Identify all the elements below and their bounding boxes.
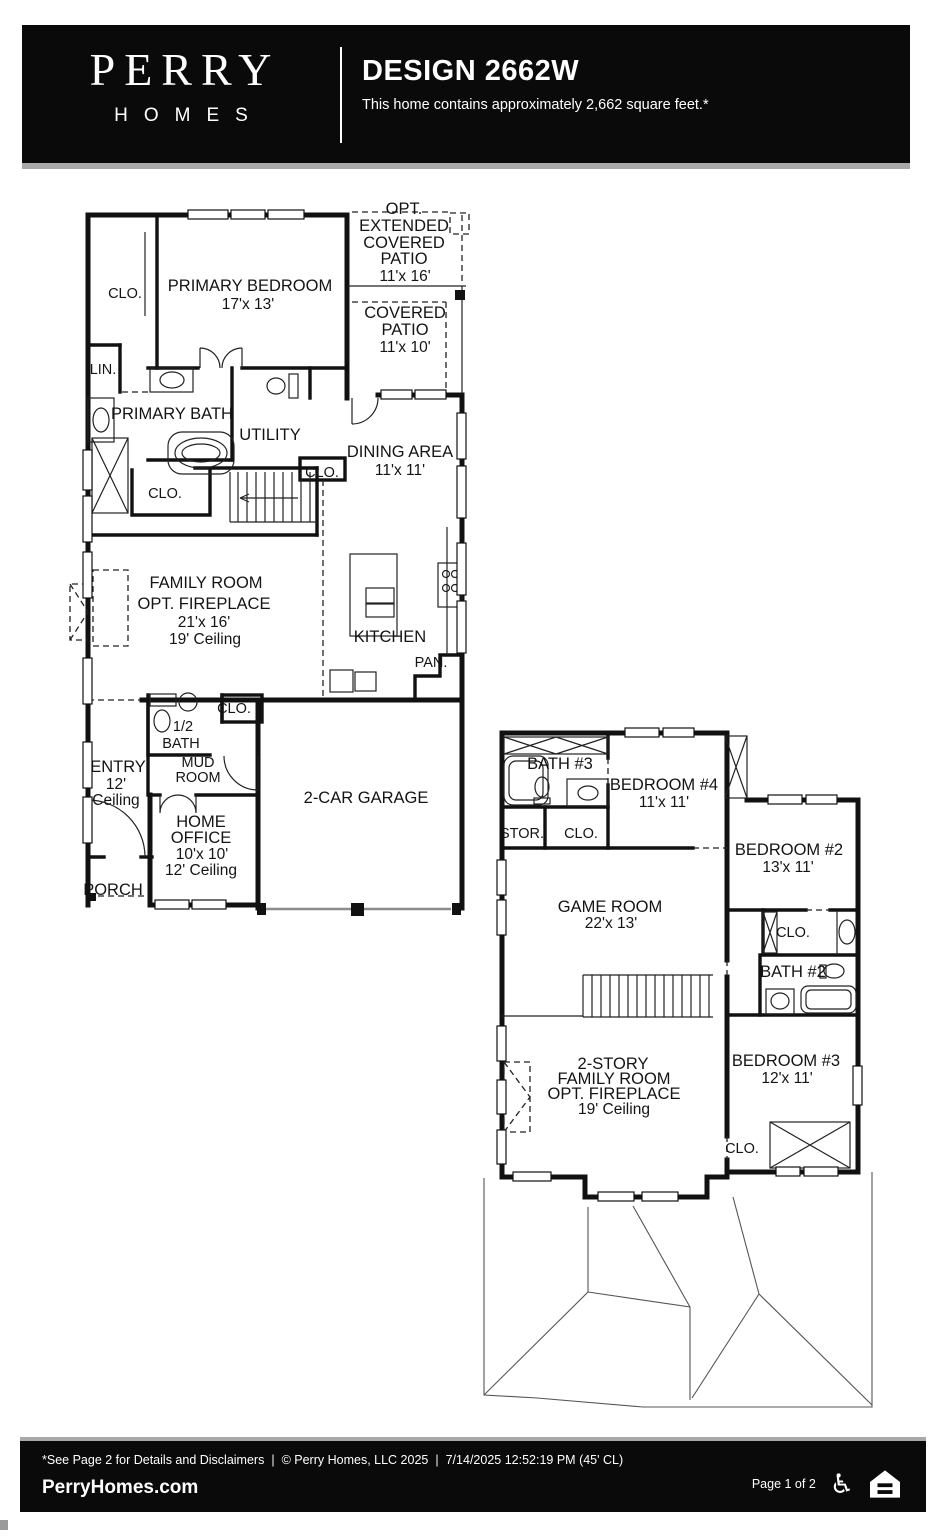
label-home-office-dims: 10'x 10' <box>176 846 228 863</box>
label-bedroom2: BEDROOM #2 <box>735 841 843 859</box>
floor1-labels: CLO. PRIMARY BEDROOM 17'x 13' OPT. EXTEN… <box>83 200 453 899</box>
label-entry-height: 12' <box>106 776 126 793</box>
toilet-utility <box>267 374 298 398</box>
label-primary-bath: PRIMARY BATH <box>111 405 233 423</box>
footer-separator-2: | <box>428 1453 445 1467</box>
footer-disclaimer-line: *See Page 2 for Details and Disclaimers|… <box>42 1453 623 1467</box>
floor2-fireplace-option <box>504 1062 530 1132</box>
label-clo-bedroom2: CLO. <box>776 925 810 941</box>
label-entry: ENTRY <box>90 758 146 776</box>
label-opt-patio-1: OPT. <box>386 200 423 218</box>
label-stor: STOR. <box>500 826 544 842</box>
label-family-room-dims: 21'x 16' <box>178 614 230 631</box>
label-bedroom4-dims: 11'x 11' <box>639 794 689 811</box>
label-2story-ceiling: 19' Ceiling <box>578 1101 650 1118</box>
label-pantry: PAN. <box>415 655 448 671</box>
label-entry-ceiling: Ceiling <box>92 792 139 809</box>
label-half-bath-2: BATH <box>162 736 200 752</box>
label-covered-patio-2: PATIO <box>381 321 428 339</box>
footer-timestamp: 7/14/2025 12:52:19 PM <box>446 1453 576 1467</box>
footer-website: PerryHomes.com <box>42 1477 198 1499</box>
footer-plan-note: (45' CL) <box>579 1453 623 1467</box>
accessibility-icon: ♿ <box>830 1471 854 1498</box>
label-mud-room-2: ROOM <box>175 770 220 786</box>
label-home-office-ceiling: 12' Ceiling <box>165 862 237 879</box>
label-mud-room-1: MUD <box>181 755 214 771</box>
label-clo-bedroom4: CLO. <box>564 826 598 842</box>
page-indicator: Page 1 of 2 <box>752 1477 816 1491</box>
label-primary-bedroom: PRIMARY BEDROOM <box>168 277 332 295</box>
label-bath3: BATH #3 <box>527 755 593 773</box>
label-clo-utility: CLO. <box>305 465 339 481</box>
label-clo-bedroom3: CLO. <box>725 1141 759 1157</box>
label-lin: LIN. <box>90 362 117 378</box>
label-covered-patio-1: COVERED <box>364 304 446 322</box>
label-family-room-1: FAMILY ROOM <box>149 574 262 592</box>
label-family-room-2: OPT. FIREPLACE <box>138 595 271 613</box>
corner-mark <box>0 1520 8 1530</box>
label-opt-patio-4: PATIO <box>380 250 427 268</box>
label-opt-patio-dims: 11'x 16' <box>379 268 430 285</box>
label-bath2: BATH #2 <box>760 963 826 981</box>
bedroom3-closet <box>770 1122 850 1168</box>
label-garage: 2-CAR GARAGE <box>304 789 429 807</box>
label-kitchen: KITCHEN <box>354 628 426 646</box>
label-dining-area: DINING AREA <box>347 443 453 461</box>
garage-doors <box>257 903 461 916</box>
label-utility: UTILITY <box>239 426 300 444</box>
label-family-room-ceiling: 19' Ceiling <box>169 631 241 648</box>
footer-bar: *See Page 2 for Details and Disclaimers|… <box>20 1441 926 1512</box>
floor-plan-page: { "header": { "brand_line1": "PERRY", "b… <box>0 0 932 1536</box>
footer-copyright: © Perry Homes, LLC 2025 <box>282 1453 429 1467</box>
footer-right-group: Page 1 of 2 ♿ <box>752 1469 902 1499</box>
footer-separator-1: | <box>264 1453 281 1467</box>
staircase-floor2 <box>583 975 713 1017</box>
label-covered-patio-dims: 11'x 10' <box>379 339 430 356</box>
floorplan-canvas: CLO. PRIMARY BEDROOM 17'x 13' OPT. EXTEN… <box>0 0 932 1536</box>
equal-housing-icon <box>868 1469 902 1499</box>
label-bedroom4: BEDROOM #4 <box>610 776 718 794</box>
label-game-room-dims: 22'x 13' <box>585 915 637 932</box>
label-half-bath-1: 1/2 <box>173 719 193 735</box>
label-bedroom2-dims: 13'x 11' <box>762 859 813 876</box>
label-bedroom3: BEDROOM #3 <box>732 1052 840 1070</box>
label-dining-dims: 11'x 11' <box>375 462 425 479</box>
label-opt-patio-2: EXTENDED <box>359 217 449 235</box>
label-clo-hall: CLO. <box>217 701 251 717</box>
label-bedroom3-dims: 12'x 11' <box>761 1070 812 1087</box>
footer-disclaimer: *See Page 2 for Details and Disclaimers <box>42 1453 264 1467</box>
label-game-room: GAME ROOM <box>558 898 663 916</box>
label-primary-bedroom-dims: 17'x 13' <box>222 296 274 313</box>
label-porch: PORCH <box>83 881 143 899</box>
label-clo-primary-bedroom: CLO. <box>108 286 142 302</box>
label-clo-primary: CLO. <box>148 486 182 502</box>
label-home-office-2: OFFICE <box>171 829 232 847</box>
roof-outline <box>484 1172 872 1407</box>
shower-floor1 <box>92 438 128 513</box>
